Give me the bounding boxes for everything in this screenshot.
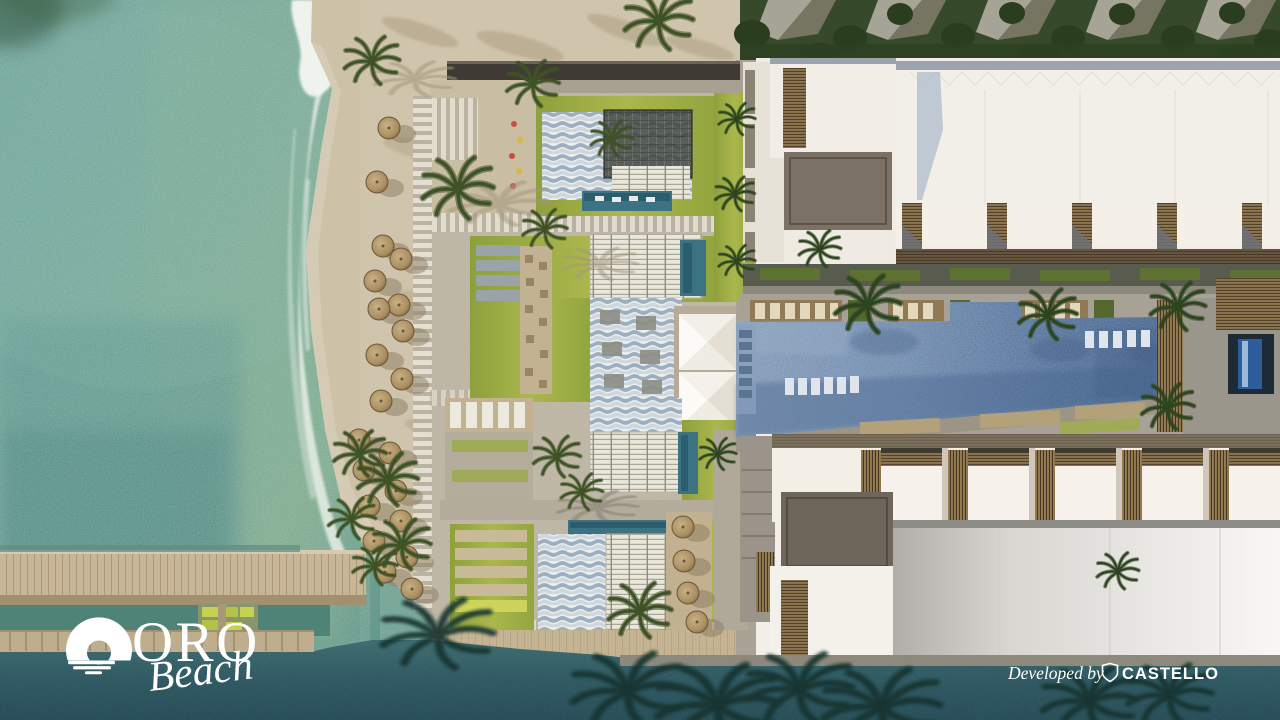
svg-text:CASTELLO: CASTELLO [1122,665,1219,683]
svg-text:Developed by: Developed by [1007,663,1104,683]
